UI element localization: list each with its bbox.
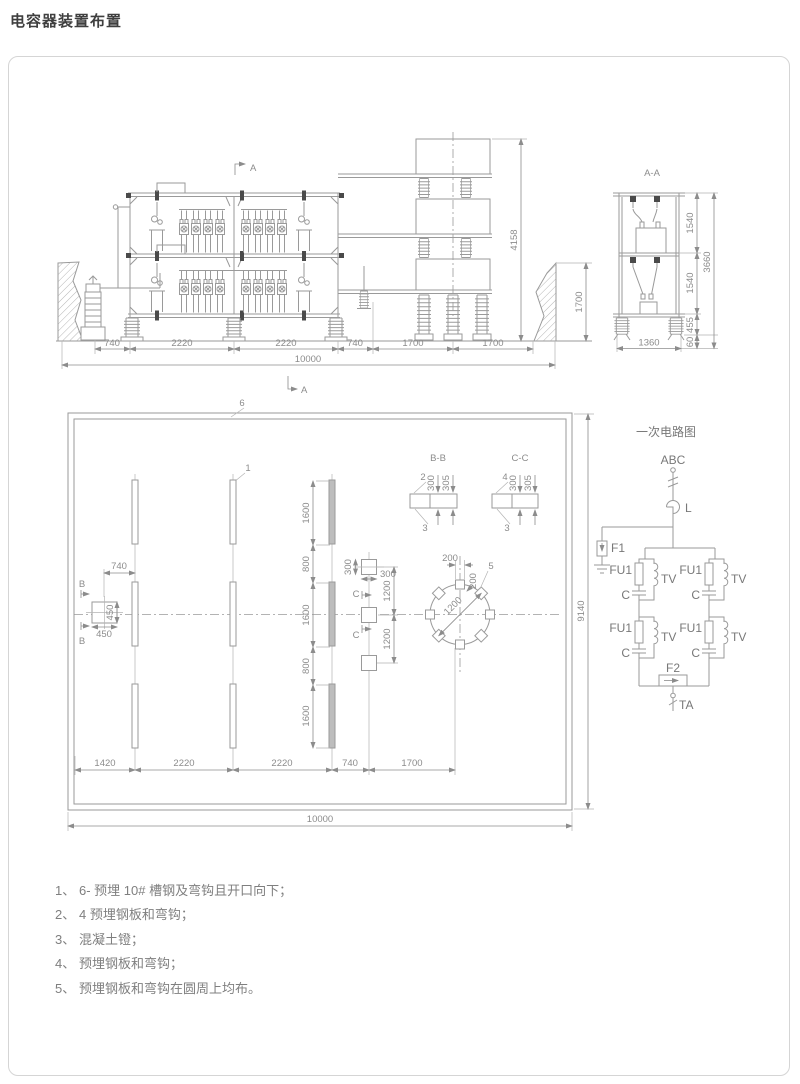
dim: 2220 [173, 758, 194, 769]
dim: 1600 [301, 705, 312, 726]
dim: 800 [301, 658, 312, 674]
dim: 1540 [685, 272, 696, 293]
circuit-title: 一次电路图 [636, 424, 696, 439]
dim: 300 [343, 559, 354, 575]
dim: 1600 [301, 604, 312, 625]
note-5: 5、预埋钢板和弯钩在圆周上均布。 [55, 975, 292, 1000]
circuit-label-tv: TV [661, 630, 676, 644]
dim: 740 [111, 561, 127, 572]
plan-label-1: 1 [245, 463, 250, 474]
notes-list: 1、6- 预埋 10# 槽钢及弯钩且开口向下； 2、4 预埋钢板和弯钩； 3、混… [55, 877, 292, 1000]
dim: 2220 [271, 758, 292, 769]
note-number: 1、 [55, 880, 79, 899]
dim: 1700 [482, 338, 503, 349]
circuit-label-fu1: FU1 [679, 621, 702, 635]
circuit-label-f1: F1 [611, 541, 625, 555]
dim: 1700 [402, 338, 423, 349]
note-number: 4、 [55, 953, 79, 972]
circuit-label-fu1: FU1 [609, 563, 632, 577]
detail-cc-label-4: 4 [502, 472, 507, 483]
dim: 1700 [574, 291, 585, 312]
dim: 1360 [638, 338, 659, 349]
dim: 450 [105, 605, 116, 621]
detail-bb-label-2: 2 [420, 472, 425, 483]
dim: 740 [342, 758, 358, 769]
dim: 1200 [382, 628, 393, 649]
detail-bb-label-3: 3 [422, 523, 427, 534]
dim: 300 [380, 569, 396, 580]
note-text: 预埋钢板和弯钩在圆周上均布。 [79, 978, 261, 997]
dim: 305 [441, 475, 452, 491]
dim: 60 [685, 337, 696, 348]
circuit-label-f2: F2 [666, 661, 680, 675]
dim: 740 [104, 338, 120, 349]
circuit-label-abc: ABC [661, 453, 686, 467]
dim: 300 [508, 475, 519, 491]
dim: 1700 [401, 758, 422, 769]
primary-circuit-diagram: 一次电路图 ABC L F1 FU1 TV C FU1 TV C FU1 TV … [594, 424, 746, 712]
note-2: 2、4 预埋钢板和弯钩； [55, 902, 292, 927]
note-4: 4、预埋钢板和弯钩； [55, 951, 292, 976]
dim: 3660 [702, 251, 713, 272]
elevation-view: A 740 2220 2220 740 1700 1700 10000 4158… [56, 132, 592, 396]
note-text: 4 预埋钢板和弯钩； [79, 904, 194, 923]
plan-marker-b-top: B [79, 579, 85, 590]
detail-cc: C-C 300 305 4 3 [492, 453, 538, 534]
circuit-label-ta: TA [679, 698, 693, 712]
note-3: 3、混凝土镫； [55, 926, 292, 951]
dim: 455 [685, 317, 696, 333]
section-aa-title: A-A [644, 168, 661, 179]
note-text: 6- 预埋 10# 槽钢及弯钩且开口向下； [79, 880, 292, 899]
detail-cc-title: C-C [512, 453, 529, 464]
dim: 1420 [94, 758, 115, 769]
detail-bb-title: B-B [430, 453, 446, 464]
dim: 450 [96, 629, 112, 640]
dim: 200 [468, 573, 479, 589]
dim: 1540 [685, 212, 696, 233]
elev-marker-a-top: A [250, 163, 257, 174]
dim: 800 [301, 556, 312, 572]
plan-label-6: 6 [239, 398, 244, 409]
dim: 740 [347, 338, 363, 349]
dim: 2220 [275, 338, 296, 349]
elev-marker-a-bottom: A [301, 385, 308, 396]
dim: 2220 [171, 338, 192, 349]
detail-cc-label-3: 3 [504, 523, 509, 534]
plan-marker-b-bottom: B [79, 636, 85, 647]
plan-label-5: 5 [488, 561, 493, 572]
dim: 1200 [382, 580, 393, 601]
circuit-label-tv: TV [731, 630, 746, 644]
dim: 300 [426, 475, 437, 491]
circuit-label-fu1: FU1 [679, 563, 702, 577]
section-aa: A-A 1360 1540 1540 455 60 3660 [613, 168, 718, 352]
dim: 1600 [301, 502, 312, 523]
dim: 200 [442, 553, 458, 564]
circuit-label-c: C [621, 588, 630, 602]
note-number: 2、 [55, 904, 79, 923]
circuit-label-tv: TV [661, 572, 676, 586]
circuit-label-c: C [691, 588, 700, 602]
dim: 10000 [307, 814, 333, 825]
dim: 4158 [509, 229, 520, 250]
circuit-label-c: C [691, 646, 700, 660]
note-text: 混凝土镫； [79, 929, 144, 948]
dim: 9140 [576, 600, 587, 621]
circuit-label-c: C [621, 646, 630, 660]
note-1: 1、6- 预埋 10# 槽钢及弯钩且开口向下； [55, 877, 292, 902]
plan-marker-c-bottom: C [353, 630, 360, 641]
note-number: 3、 [55, 929, 79, 948]
dim: 10000 [295, 354, 321, 365]
note-number: 5、 [55, 978, 79, 997]
circuit-label-tv: TV [731, 572, 746, 586]
dim: 305 [523, 475, 534, 491]
detail-bb: B-B 300 305 2 3 [410, 453, 457, 534]
circuit-label-fu1: FU1 [609, 621, 632, 635]
circuit-label-l: L [685, 501, 692, 515]
plan-marker-c-top: C [353, 589, 360, 600]
note-text: 预埋钢板和弯钩； [79, 953, 183, 972]
